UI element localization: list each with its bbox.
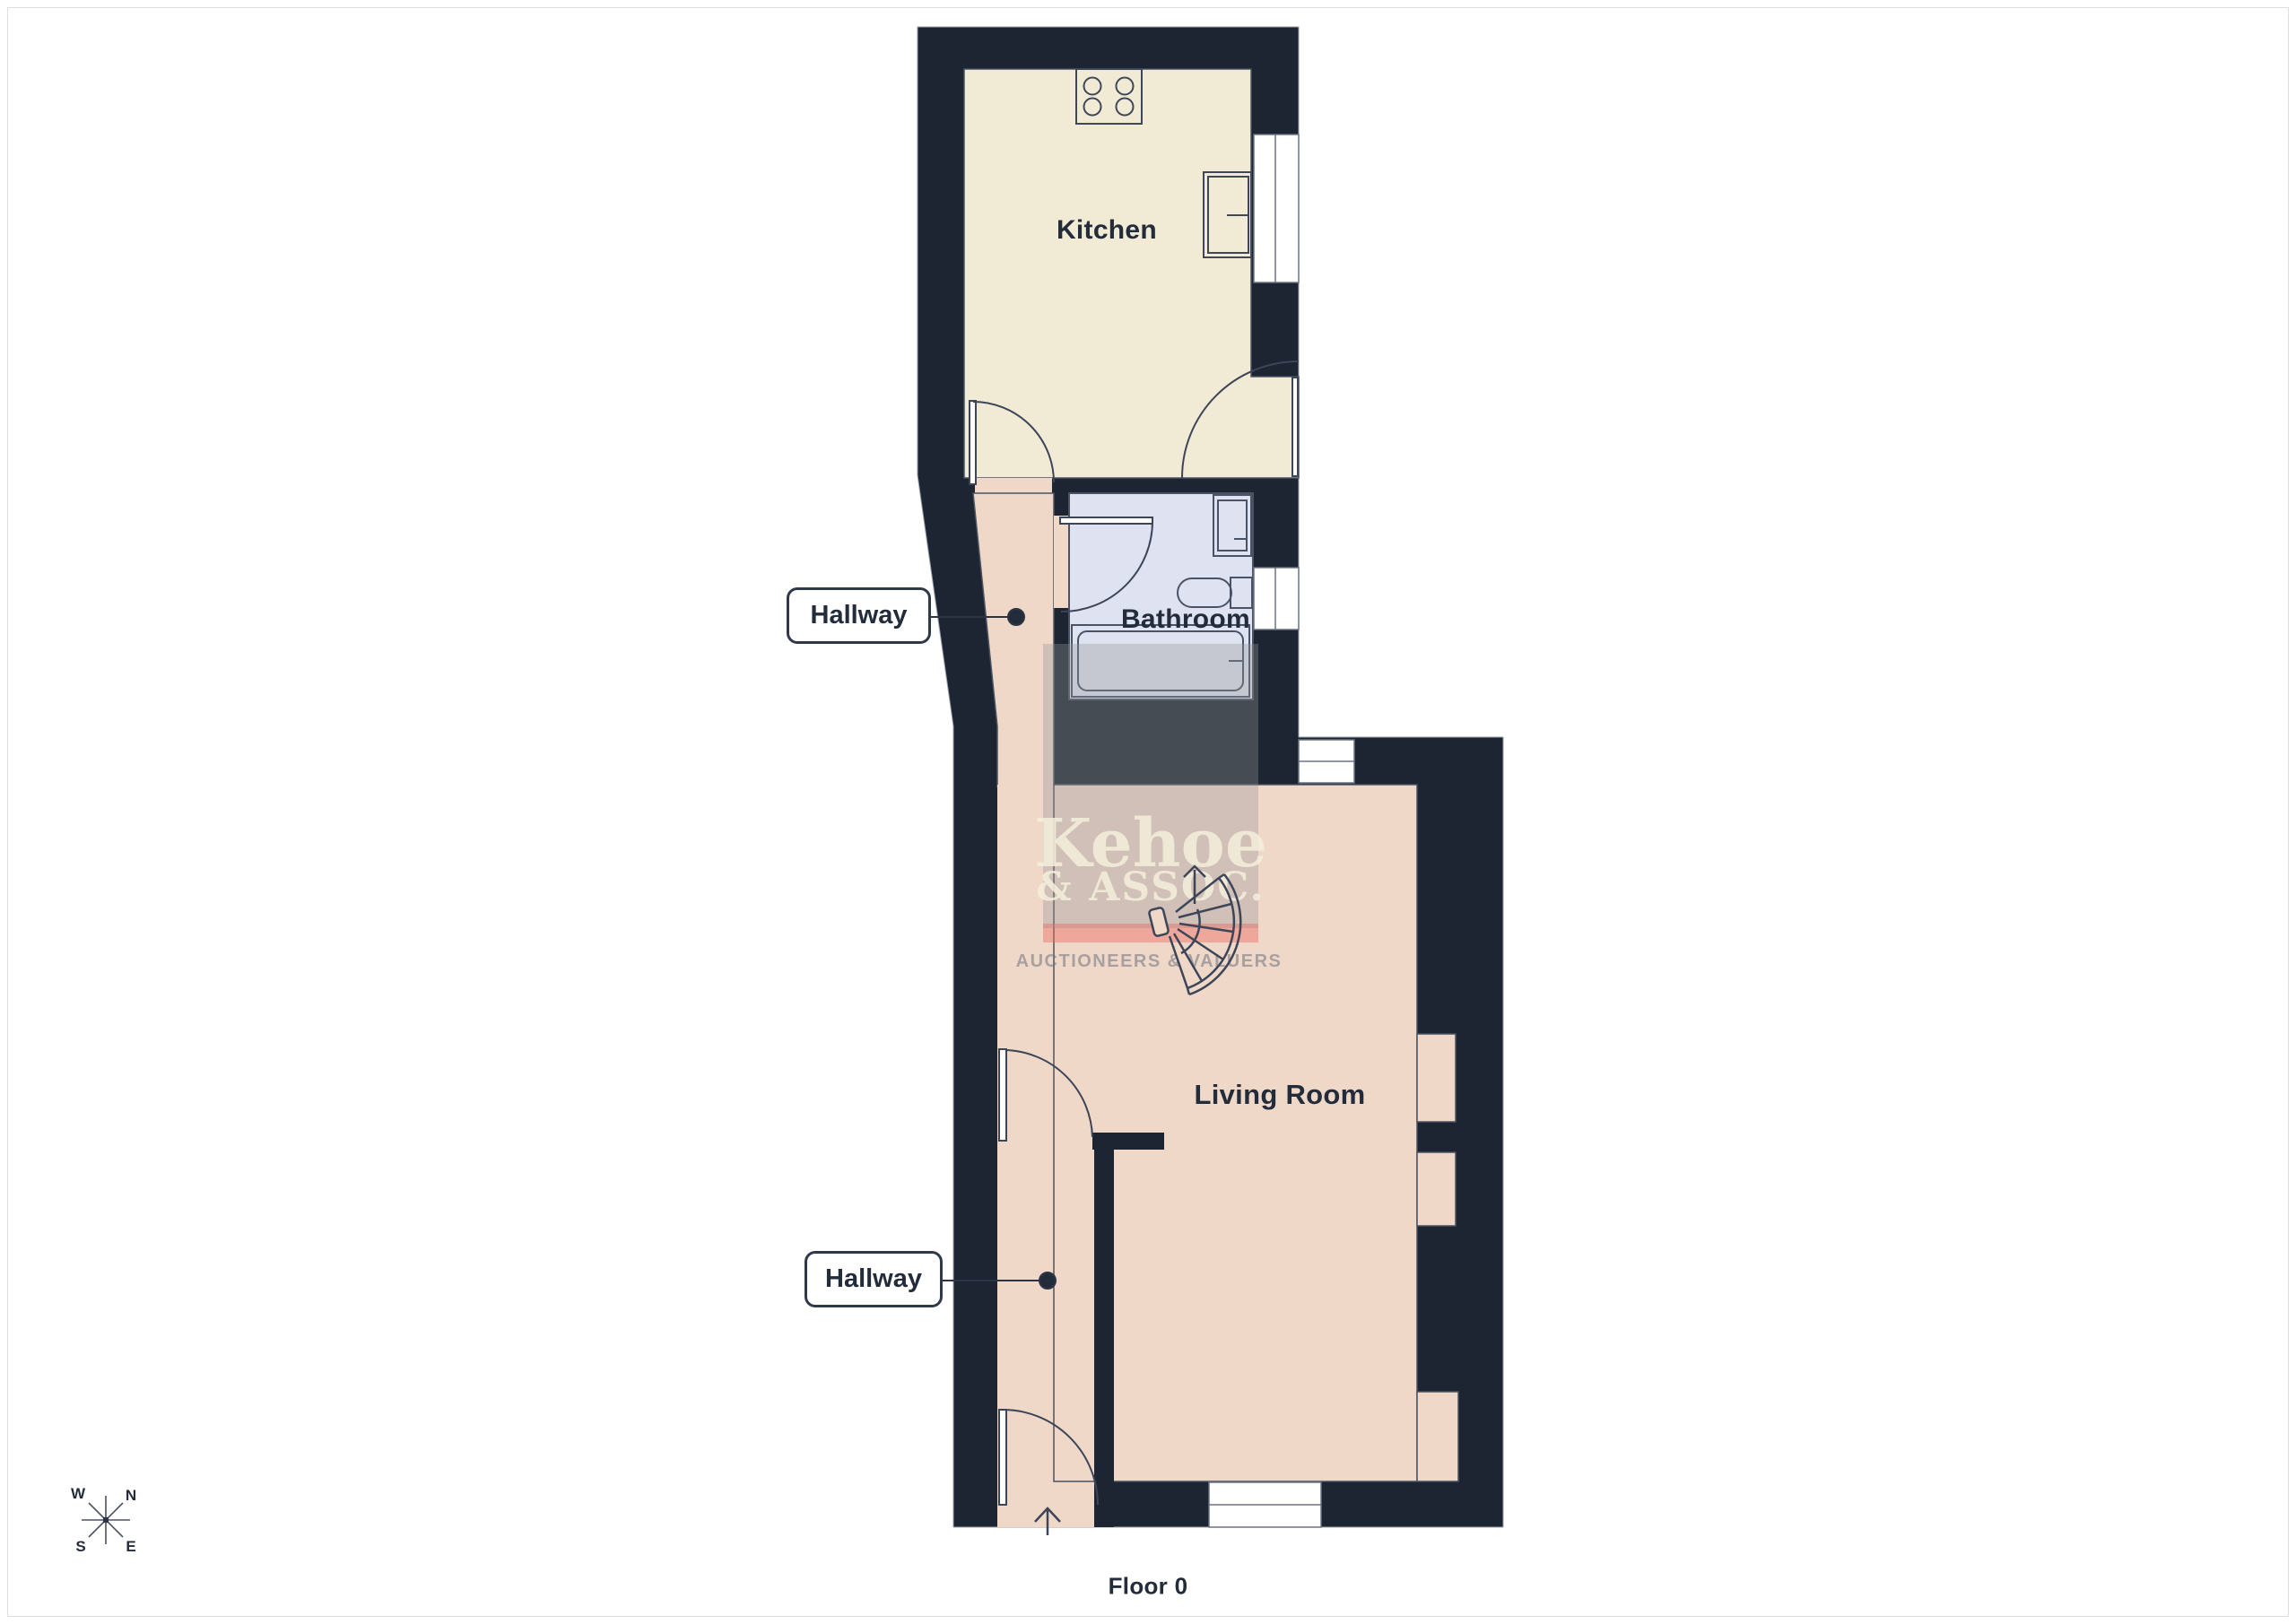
living-room-top-window [1299, 740, 1354, 783]
floor-title: Floor 0 [1109, 1573, 1188, 1601]
watermark-logo: Kehoe & ASSOC. AUCTIONEERS & VALUERS [1016, 644, 1283, 971]
bathroom-window [1254, 568, 1299, 630]
hallway-lower-label: Hallway [825, 1264, 922, 1294]
hallway-upper-label: Hallway [811, 601, 908, 630]
floorplan-page: Kehoe & ASSOC. AUCTIONEERS & VALUERS [0, 0, 2296, 1624]
living-room-label: Living Room [1194, 1079, 1365, 1111]
kitchen-label: Kitchen [1057, 215, 1157, 246]
hallway-upper-callout: Hallway [787, 587, 931, 644]
kitchen-floor [964, 69, 1299, 478]
bathroom-label: Bathroom [1121, 604, 1250, 635]
hallway-lower-callout: Hallway [804, 1251, 943, 1307]
compass-west-label: W [71, 1485, 85, 1503]
kitchen-window [1254, 135, 1299, 282]
watermark-tagline: AUCTIONEERS & VALUERS [1016, 951, 1283, 971]
compass-icon [82, 1496, 130, 1544]
compass-north-label: N [126, 1487, 136, 1505]
compass-east-label: E [126, 1538, 135, 1556]
living-room-bottom-window [1209, 1482, 1321, 1527]
compass-south-label: S [75, 1538, 85, 1556]
